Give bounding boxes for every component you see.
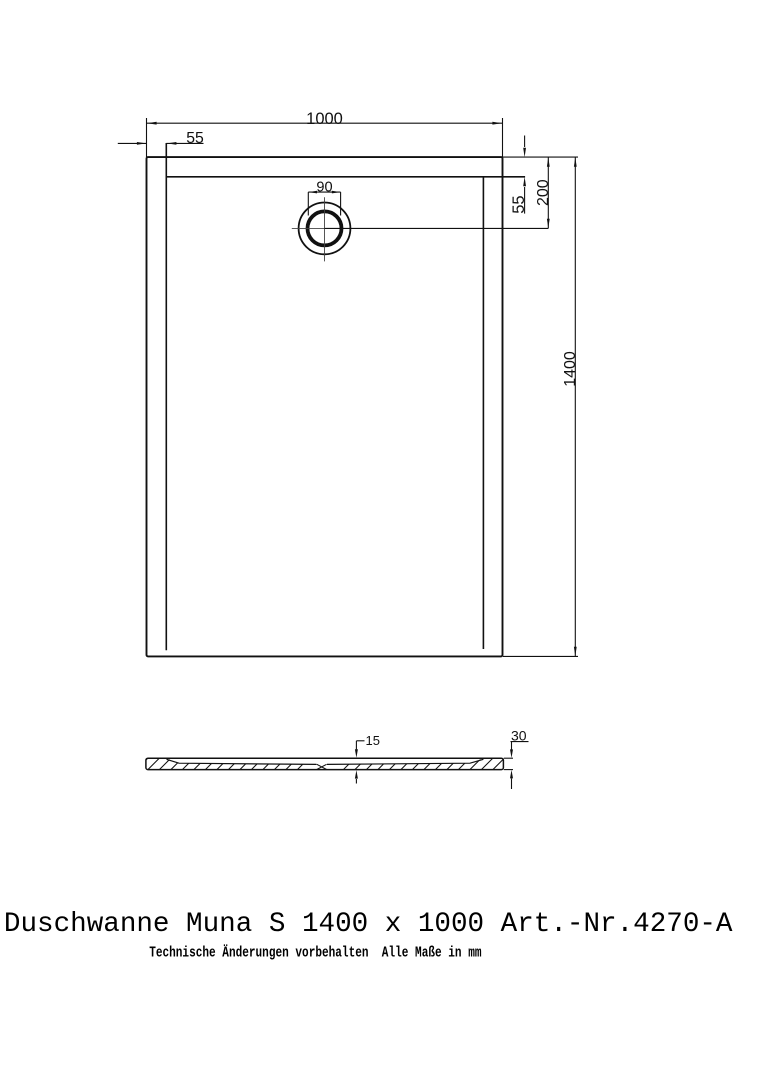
svg-text:90: 90 xyxy=(316,179,332,195)
svg-text:200: 200 xyxy=(535,179,552,206)
svg-text:30: 30 xyxy=(511,727,527,743)
svg-text:1000: 1000 xyxy=(306,110,343,128)
svg-text:1400: 1400 xyxy=(562,351,579,387)
svg-text:55: 55 xyxy=(510,195,528,213)
svg-text:15: 15 xyxy=(366,733,380,748)
svg-text:55: 55 xyxy=(186,130,204,147)
svg-text:Technische Änderungen vorbehal: Technische Änderungen vorbehalten Alle M… xyxy=(149,944,481,961)
svg-text:Duschwanne Muna S 1400 x 1000: Duschwanne Muna S 1400 x 1000 Art.-Nr.42… xyxy=(4,909,733,940)
